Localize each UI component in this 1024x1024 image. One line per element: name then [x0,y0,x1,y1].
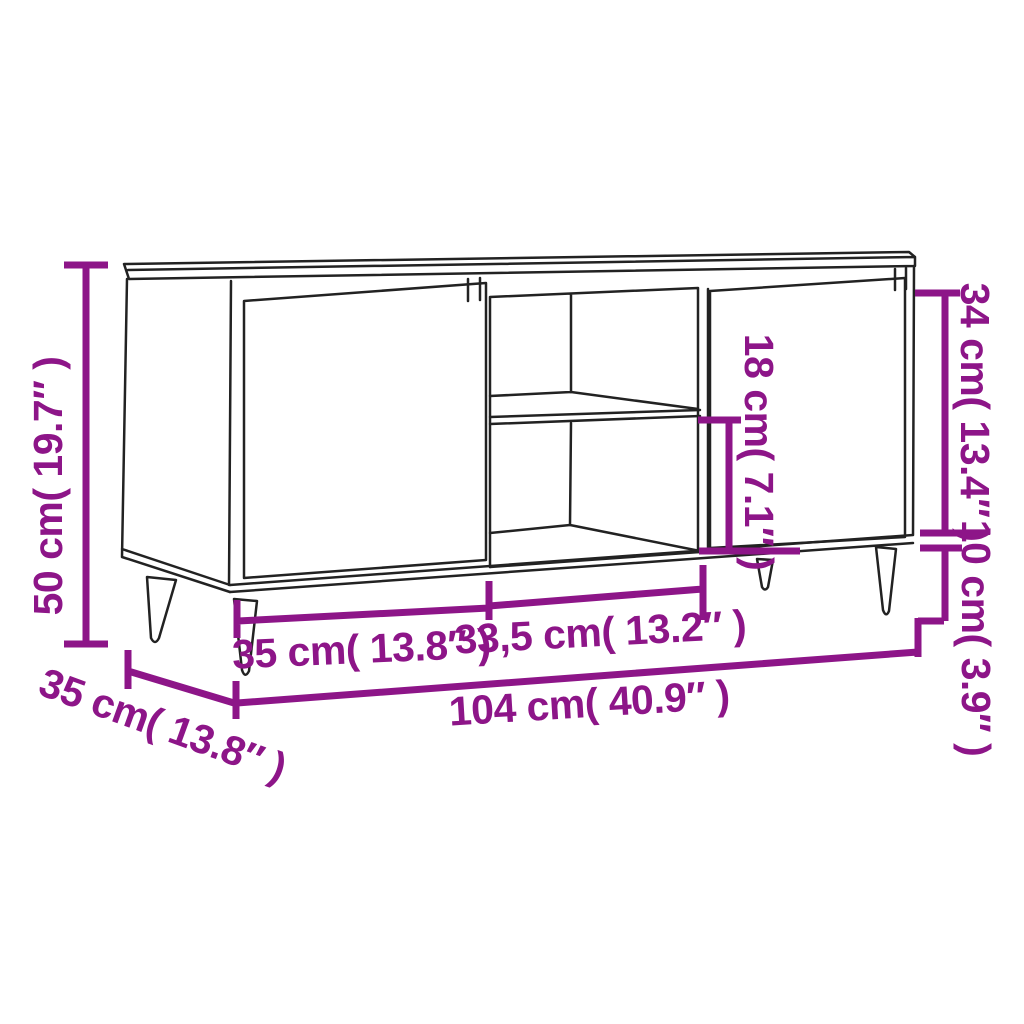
compartment-height-dimension: 18 cm( 7.1″ ) [698,334,800,570]
cabinet-left-door [244,283,486,578]
compartment-height-dimension-label: 18 cm( 7.1″ ) [736,334,782,570]
cabinet-drawing [122,252,915,675]
middle-compartment-frame [490,288,708,567]
door-height-dimension-label: 34 cm( 13.4″ ) [952,283,998,542]
middle-compartment-floor [490,423,700,567]
door-height-dimension: 34 cm( 13.4″ ) [915,283,998,542]
diagram-canvas: 50 cm( 19.7″ ) 35 cm( 13.8″ ) 35 cm( 13.… [0,0,1024,1024]
furniture-dimension-diagram: 50 cm( 19.7″ ) 35 cm( 13.8″ ) 35 cm( 13.… [0,0,1024,1024]
middle-section-dimension: 33,5 cm( 13.2″ ) [453,565,747,663]
back-left-leg [147,577,176,642]
height-dimension-label: 50 cm( 19.7″ ) [25,357,71,616]
cabinet-top-panel [124,252,915,279]
middle-section-dimension-label: 33,5 cm( 13.2″ ) [453,601,747,662]
leg-height-dimension-label: 10 cm( 3.9″ ) [953,520,999,756]
height-dimension: 50 cm( 19.7″ ) [25,265,108,644]
dimension-annotations: 50 cm( 19.7″ ) 35 cm( 13.8″ ) 35 cm( 13.… [25,265,999,791]
front-right-leg [876,547,896,614]
leg-height-dimension: 10 cm( 3.9″ ) [920,520,999,756]
middle-shelf [490,392,700,424]
left-section-dimension: 35 cm( 13.8″ ) [231,581,492,678]
left-section-dimension-label: 35 cm( 13.8″ ) [231,620,492,677]
cabinet-left-side-panel [122,279,231,592]
